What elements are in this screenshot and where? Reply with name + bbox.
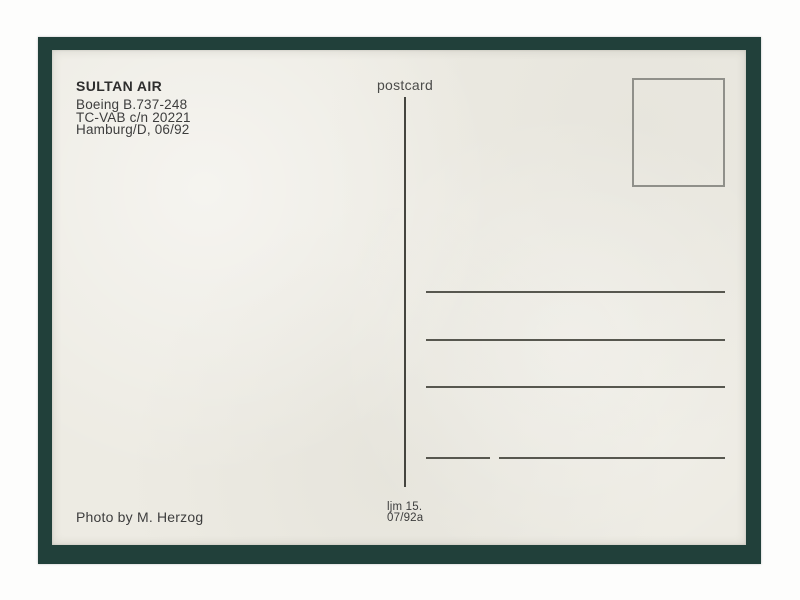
address-line-4-segment-2: [499, 457, 725, 459]
postcard-label: postcard: [373, 77, 437, 93]
address-line-1: [426, 291, 725, 293]
address-line-4-segment-1: [426, 457, 490, 459]
address-line-2: [426, 339, 725, 341]
stamp-box: [632, 78, 725, 187]
edition-block: ljm 15. 07/92a: [387, 502, 423, 524]
photo-credit: Photo by M. Herzog: [76, 509, 203, 525]
publisher-block: SULTAN AIR Boeing B.737-248 TC-VAB c/n 2…: [76, 78, 191, 137]
location-date-line: Hamburg/D, 06/92: [76, 124, 191, 137]
scanned-postcard-image: SULTAN AIR Boeing B.737-248 TC-VAB c/n 2…: [0, 0, 800, 600]
address-line-3: [426, 386, 725, 388]
divider-line: [404, 97, 406, 487]
edition-code: 07/92a: [387, 513, 423, 524]
postcard-back: SULTAN AIR Boeing B.737-248 TC-VAB c/n 2…: [52, 50, 746, 545]
airline-name: SULTAN AIR: [76, 78, 191, 94]
postcard-frame: SULTAN AIR Boeing B.737-248 TC-VAB c/n 2…: [38, 37, 761, 564]
